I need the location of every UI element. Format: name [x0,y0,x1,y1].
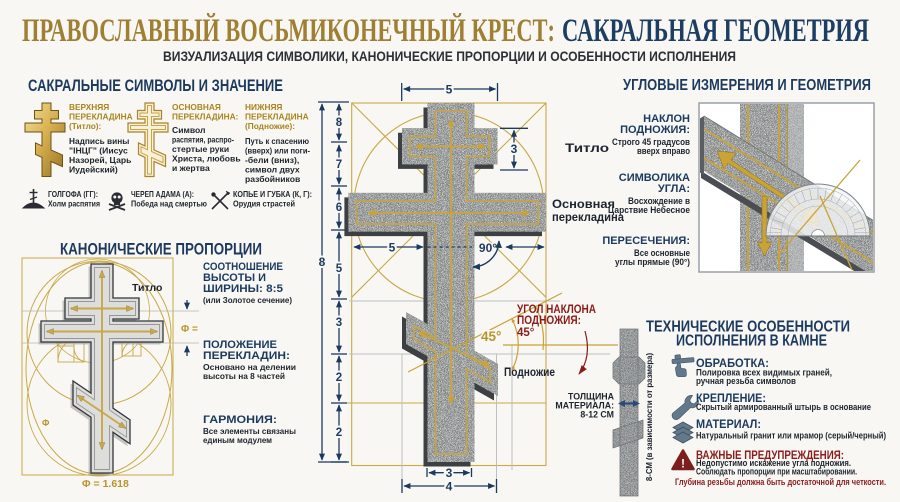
svg-text:НИЖНЯЯ: НИЖНЯЯ [245,102,282,112]
svg-text:углы прямые (90°): углы прямые (90°) [615,257,690,267]
svg-text:САКРАЛЬНЫЕ СИМВОЛЫ И ЗНАЧЕНИЕ: САКРАЛЬНЫЕ СИМВОЛЫ И ЗНАЧЕНИЕ [28,77,283,95]
svg-text:ШИРИНЫ: 8:5: ШИРИНЫ: 8:5 [203,283,283,295]
svg-text:Назорей, Царь: Назорей, Царь [69,155,131,165]
svg-text:(Подножие):: (Подножие): [245,121,295,131]
svg-text:45°: 45° [481,329,501,344]
svg-text:Φ =: Φ = [181,324,198,335]
svg-text:90°: 90° [479,241,497,255]
svg-text:3: 3 [336,317,342,329]
svg-text:Холм распятия: Холм распятия [48,199,100,209]
svg-text:45°: 45° [517,327,535,339]
svg-text:!: ! [681,459,685,471]
svg-text:символ двух: символ двух [245,165,300,175]
svg-text:(вверх) или поги-: (вверх) или поги- [245,146,310,156]
svg-text:ПЕРЕКЛАДИНА:: ПЕРЕКЛАДИНА: [172,112,238,122]
svg-text:высоты на 8 частей: высоты на 8 частей [203,371,285,381]
svg-text:САКРАЛЬНАЯ ГЕОМЕТРИЯ: САКРАЛЬНАЯ ГЕОМЕТРИЯ [562,13,869,49]
svg-text:ручная резьба символов: ручная резьба символов [696,376,797,386]
svg-text:ГАРМОНИЯ:: ГАРМОНИЯ: [203,414,277,426]
svg-text:"ІНЦГ" (Иисус: "ІНЦГ" (Иисус [69,146,128,156]
svg-text:Иудейский): Иудейский) [69,165,118,175]
svg-text:Скрытый армированный штырь в о: Скрытый армированный штырь в основание [696,402,871,412]
svg-text:Глубина резьбы должна быть дос: Глубина резьбы должна быть достаточной д… [675,477,886,487]
svg-text:Φ: Φ [42,418,50,428]
svg-text:и жертва: и жертва [172,163,210,173]
svg-text:Титло: Титло [565,141,609,155]
svg-text:КАНОНИЧЕСКИЕ ПРОПОРЦИИ: КАНОНИЧЕСКИЕ ПРОПОРЦИИ [60,240,262,259]
svg-text:ИСПОЛНЕНИЯ В КАМНЕ: ИСПОЛНЕНИЯ В КАМНЕ [676,333,827,350]
svg-text:8: 8 [319,255,326,269]
svg-text:6: 6 [336,202,342,214]
svg-text:ПЕРЕКЛАДИНА: ПЕРЕКЛАДИНА [69,112,133,122]
svg-text:(Титло):: (Титло): [69,121,101,131]
svg-text:Царствие Небесное: Царствие Небесное [608,205,690,215]
svg-text:ЧЕРЕП АДАМА (А):: ЧЕРЕП АДАМА (А): [131,189,194,199]
svg-text:8-12 СМ: 8-12 СМ [580,410,614,420]
svg-text:5: 5 [446,83,453,97]
svg-text:Путь к спасению: Путь к спасению [245,136,309,146]
svg-text:Основная: Основная [552,197,615,211]
svg-text:Надпись вины: Надпись вины [69,136,129,146]
svg-text:ВЕРХНЯЯ: ВЕРХНЯЯ [69,102,109,112]
svg-text:ПОДНОЖИЯ:: ПОДНОЖИЯ: [517,315,581,327]
svg-text:ПОДНОЖИЯ:: ПОДНОЖИЯ: [620,124,690,136]
svg-text:ВИЗУАЛИЗАЦИЯ СИМВОЛИКИ, КАНОНИ: ВИЗУАЛИЗАЦИЯ СИМВОЛИКИ, КАНОНИЧЕСКИЕ ПРО… [163,49,736,64]
svg-text:3: 3 [446,466,453,480]
svg-text:2: 2 [336,372,342,384]
svg-text:8: 8 [336,117,343,129]
svg-text:УГЛА:: УГЛА: [658,183,690,195]
svg-text:Φ = 1.618: Φ = 1.618 [82,478,129,490]
svg-text:Орудия страстей: Орудия страстей [233,199,295,209]
svg-text:5: 5 [389,241,396,255]
svg-text:Натуральный гранит или мрамор: Натуральный гранит или мрамор (серый/чер… [696,431,886,441]
svg-text:Соблюдать пропорции при масшта: Соблюдать пропорции при масштабировании. [696,467,857,477]
svg-text:разбойников: разбойников [245,174,300,184]
svg-text:8-СМ (в зависимости от размера: 8-СМ (в зависимости от размера) [645,353,654,482]
svg-text:стертые руки: стертые руки [172,144,229,154]
svg-text:ПЕРЕКЛАДИН:: ПЕРЕКЛАДИН: [203,350,290,362]
svg-text:4: 4 [446,480,453,494]
svg-text:(или Золотое сечение): (или Золотое сечение) [203,295,292,305]
svg-text:единым модулем: единым модулем [203,435,272,445]
svg-text:УГЛОВЫЕ ИЗМЕРЕНИЯ И ГЕОМЕТРИЯ: УГЛОВЫЕ ИЗМЕРЕНИЯ И ГЕОМЕТРИЯ [623,77,871,94]
svg-text:5: 5 [336,263,343,275]
svg-text:ПЕРЕСЕЧЕНИЯ:: ПЕРЕСЕЧЕНИЯ: [602,235,690,247]
svg-text:Христа, любовь: Христа, любовь [172,154,241,164]
svg-text:вверх вправо: вверх вправо [637,146,691,156]
svg-text:КОПЬЕ И ГУБКА (К, Г):: КОПЬЕ И ГУБКА (К, Г): [233,189,312,199]
svg-text:Титло: Титло [132,282,162,294]
svg-text:ГОЛГОФА (ГГ):: ГОЛГОФА (ГГ): [48,189,98,199]
svg-text:ОСНОВНАЯ: ОСНОВНАЯ [172,102,221,112]
svg-text:МАТЕРИАЛ:: МАТЕРИАЛ: [696,419,761,431]
svg-text:2: 2 [336,427,342,439]
svg-text:Подножие: Подножие [504,365,555,379]
svg-text:Символ: Символ [172,125,206,135]
svg-text:3: 3 [511,142,518,156]
svg-text:распятия, распро-: распятия, распро- [172,135,234,145]
svg-text:Победа над смертью: Победа над смертью [131,199,207,209]
svg-text:7: 7 [336,159,342,171]
svg-text:ПРАВОСЛАВНЫЙ ВОСЬМИКОНЕЧНЫЙ КР: ПРАВОСЛАВНЫЙ ВОСЬМИКОНЕЧНЫЙ КРЕСТ: [22,13,555,49]
svg-text:-бели (вниз),: -бели (вниз), [245,155,299,165]
svg-text:ПЕРЕКЛАДИНА: ПЕРЕКЛАДИНА [245,112,309,122]
